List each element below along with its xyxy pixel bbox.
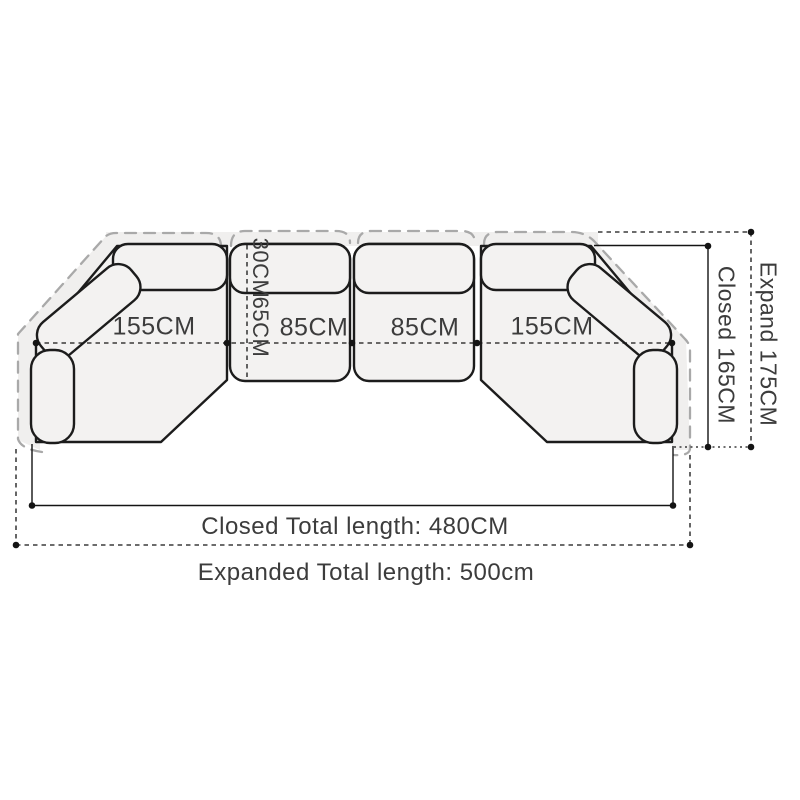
closed-total-length-label: Closed Total length: 480CM — [201, 515, 508, 539]
sofa-left-corner-section — [30, 244, 227, 443]
sofa-dimension-diagram: 155CM 85CM 85CM 155CM 30CM 65CM Closed 1… — [0, 0, 800, 800]
sofa-middle-section-2 — [354, 244, 474, 381]
seat-depth-label: 65CM — [249, 297, 271, 358]
right-section-width-label: 155CM — [510, 315, 593, 340]
middle-section-1-width-label: 85CM — [280, 316, 349, 341]
left-armrest-cushion — [31, 350, 74, 443]
expanded-total-length-label: Expanded Total length: 500cm — [198, 561, 534, 585]
closed-height-label: Closed 165CM — [715, 266, 738, 424]
diagram-canvas — [0, 0, 800, 800]
expanded-height-label: Expand 175CM — [757, 262, 780, 427]
middle-2-backrest-cushion — [354, 244, 474, 293]
right-armrest-cushion — [634, 350, 677, 443]
left-section-width-label: 155CM — [112, 315, 195, 340]
backrest-depth-label: 30CM — [249, 238, 271, 299]
middle-section-2-width-label: 85CM — [391, 316, 460, 341]
closed-total-dimension-line — [32, 444, 673, 506]
